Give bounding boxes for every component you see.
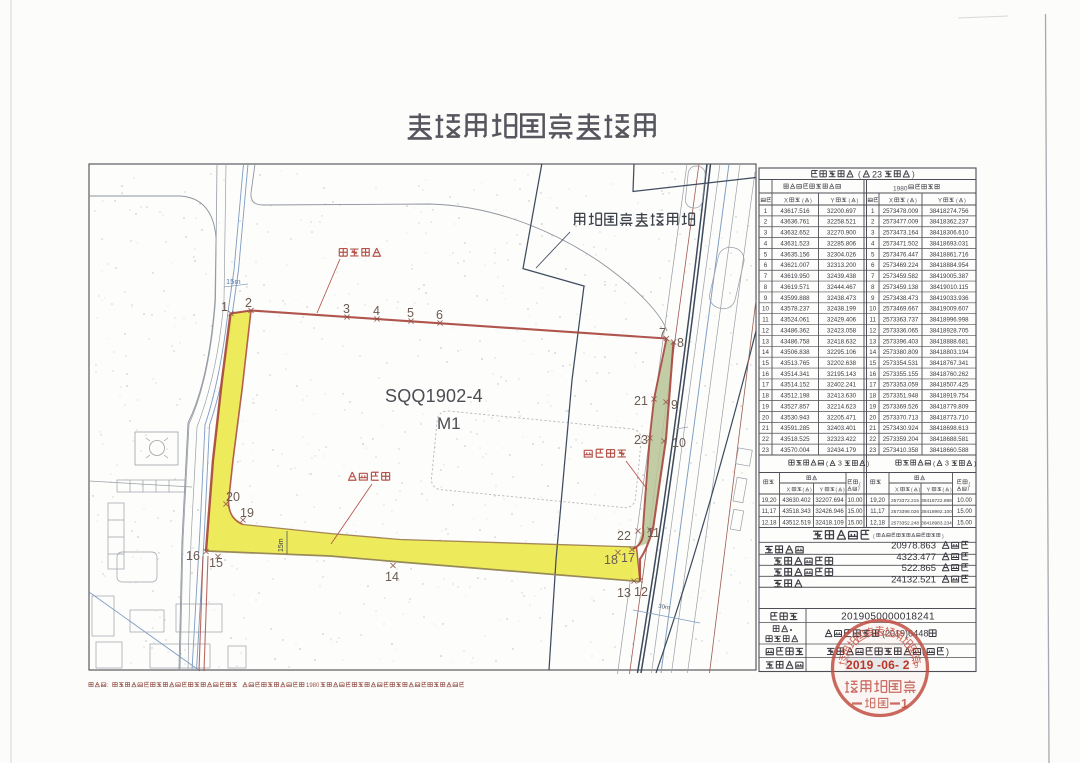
svg-text:2: 2 [764, 219, 768, 226]
svg-text:1: 1 [901, 697, 908, 711]
svg-text:2573359.204: 2573359.204 [883, 436, 919, 443]
svg-text:17: 17 [762, 382, 769, 389]
svg-text:38418688.581: 38418688.581 [930, 436, 970, 443]
svg-text:43636.761: 43636.761 [780, 219, 810, 226]
svg-text:11: 11 [869, 317, 876, 324]
svg-text:2573352.248: 2573352.248 [891, 520, 919, 526]
svg-text:38418760.262: 38418760.262 [930, 371, 970, 378]
svg-text:): ) [915, 199, 917, 205]
svg-text:32444.467: 32444.467 [827, 284, 857, 291]
svg-text:32285.806: 32285.806 [827, 240, 857, 247]
svg-text:38419009.607: 38419009.607 [930, 306, 970, 313]
svg-text:7: 7 [871, 273, 875, 280]
svg-text:43631.523: 43631.523 [780, 240, 810, 247]
svg-text:38418861.716: 38418861.716 [930, 251, 970, 258]
svg-text:32438.199: 32438.199 [827, 306, 857, 313]
svg-text:32258.521: 32258.521 [827, 219, 857, 226]
svg-text:10.00: 10.00 [957, 498, 973, 504]
svg-text:38418779.809: 38418779.809 [930, 403, 970, 410]
svg-text:8: 8 [871, 284, 875, 291]
svg-text:Y: Y [927, 488, 931, 494]
svg-text:13: 13 [762, 338, 769, 345]
svg-text:12: 12 [762, 327, 769, 334]
svg-text:38418888.681: 38418888.681 [930, 338, 970, 345]
svg-text:4: 4 [871, 240, 875, 247]
svg-text:32434.179: 32434.179 [827, 447, 857, 454]
svg-text:(: ( [849, 199, 851, 205]
svg-text:43619.950: 43619.950 [780, 273, 810, 280]
svg-text:32418.632: 32418.632 [827, 338, 857, 345]
svg-text:2573478.009: 2573478.009 [883, 208, 919, 215]
svg-text:38419005.387: 38419005.387 [930, 273, 970, 280]
svg-text:4: 4 [764, 240, 768, 247]
svg-text:43621.007: 43621.007 [780, 262, 810, 269]
svg-text:38418722.898: 38418722.898 [921, 498, 952, 504]
svg-text:2573396.403: 2573396.403 [883, 338, 919, 345]
svg-text:): ) [974, 461, 976, 468]
svg-text:): ) [946, 647, 949, 657]
svg-text:Y: Y [820, 488, 824, 494]
svg-text:38419033.936: 38419033.936 [930, 295, 970, 302]
svg-text:2573398.026: 2573398.026 [891, 509, 919, 515]
svg-text:32270.900: 32270.900 [827, 230, 857, 237]
svg-text:22: 22 [869, 436, 876, 443]
svg-text:43506.838: 43506.838 [780, 349, 810, 356]
svg-text:2573471.502: 2573471.502 [883, 240, 919, 247]
svg-text:4323.477: 4323.477 [896, 552, 936, 563]
svg-text:5: 5 [871, 251, 875, 258]
svg-text:43512.198: 43512.198 [780, 393, 810, 400]
svg-text:8: 8 [764, 284, 768, 291]
svg-text:15.00: 15.00 [957, 520, 973, 526]
svg-text:43530.943: 43530.943 [780, 414, 810, 421]
svg-text:10: 10 [762, 306, 769, 313]
svg-text:19,20: 19,20 [870, 498, 886, 504]
svg-text:20: 20 [869, 414, 876, 421]
svg-text:6: 6 [764, 262, 768, 269]
svg-text:38418773.710: 38418773.710 [930, 414, 970, 421]
svg-text:2573469.667: 2573469.667 [883, 306, 919, 313]
svg-text:18: 18 [762, 393, 769, 400]
svg-text:2573351.948: 2573351.948 [883, 393, 919, 400]
svg-text:10: 10 [869, 306, 876, 313]
svg-text:): ) [912, 170, 915, 179]
svg-text:22: 22 [762, 436, 769, 443]
svg-text:5: 5 [764, 251, 768, 258]
svg-text:15: 15 [762, 360, 769, 367]
svg-text:15.00: 15.00 [847, 509, 863, 515]
svg-text:32195.143: 32195.143 [827, 371, 857, 378]
svg-text:17: 17 [869, 382, 876, 389]
svg-text:43591.285: 43591.285 [780, 425, 810, 432]
svg-text:38418983.234: 38418983.234 [921, 520, 952, 526]
svg-text:43599.888: 43599.888 [780, 295, 810, 302]
svg-text:38418306.610: 38418306.610 [930, 230, 970, 237]
svg-text:32418.109: 32418.109 [815, 520, 844, 526]
svg-text:19,20: 19,20 [761, 498, 777, 504]
svg-text:2573438.473: 2573438.473 [883, 295, 919, 302]
svg-text:15.00: 15.00 [957, 509, 973, 515]
svg-text:32295.106: 32295.106 [827, 349, 857, 356]
svg-text:1980: 1980 [893, 186, 908, 193]
svg-text:2573477.009: 2573477.009 [883, 219, 919, 226]
svg-text:23: 23 [872, 170, 882, 180]
svg-text:15: 15 [869, 360, 876, 367]
svg-text:38418362.237: 38418362.237 [930, 219, 970, 226]
svg-text:32323.422: 32323.422 [827, 436, 857, 443]
svg-text:38418767.341: 38418767.341 [930, 360, 970, 367]
svg-text:23: 23 [869, 447, 876, 454]
svg-text:10.00: 10.00 [847, 498, 863, 504]
svg-text:13: 13 [869, 338, 876, 345]
svg-text:2573355.155: 2573355.155 [883, 371, 919, 378]
svg-text:38418660.588: 38418660.588 [930, 447, 970, 454]
svg-text:32200.697: 32200.697 [827, 208, 857, 215]
svg-text:32426.946: 32426.946 [815, 509, 844, 515]
svg-text:): ) [810, 199, 812, 205]
svg-text:32402.241: 32402.241 [827, 382, 857, 389]
svg-text:38418996.998: 38418996.998 [930, 317, 970, 324]
svg-text:43630.402: 43630.402 [782, 498, 811, 504]
svg-text:20: 20 [762, 414, 769, 421]
svg-text:9: 9 [764, 295, 768, 302]
svg-text:20978.863: 20978.863 [891, 541, 936, 552]
svg-text:38418884.954: 38418884.954 [930, 262, 970, 269]
svg-text:38418992.100: 38418992.100 [921, 509, 952, 515]
svg-text:7: 7 [764, 273, 768, 280]
svg-text:2573410.358: 2573410.358 [883, 447, 919, 454]
svg-text:X: X [787, 488, 791, 494]
svg-text:2573354.531: 2573354.531 [883, 360, 919, 367]
svg-text:3: 3 [871, 230, 875, 237]
svg-text:12: 12 [869, 327, 876, 334]
svg-text:32438.473: 32438.473 [827, 295, 857, 302]
svg-text:43514.341: 43514.341 [780, 371, 810, 378]
svg-text:43527.857: 43527.857 [780, 403, 810, 410]
svg-text:14: 14 [762, 349, 769, 356]
svg-text:): ) [857, 199, 859, 205]
svg-text:11,17: 11,17 [762, 509, 777, 515]
svg-text:2573459.582: 2573459.582 [883, 273, 919, 280]
svg-text:2573353.059: 2573353.059 [883, 382, 919, 389]
svg-text:32202.638: 32202.638 [827, 360, 857, 367]
svg-text:2573473.164: 2573473.164 [883, 230, 919, 237]
svg-text:21: 21 [762, 425, 769, 432]
svg-text:38418928.705: 38418928.705 [930, 327, 970, 334]
svg-text:9: 9 [914, 661, 919, 670]
svg-text:X: X [784, 199, 788, 205]
svg-text:24132.521: 24132.521 [891, 574, 936, 585]
svg-text:11: 11 [762, 317, 769, 324]
svg-text:Y: Y [831, 199, 835, 205]
svg-text:43619.571: 43619.571 [780, 284, 810, 291]
svg-text:38418803.194: 38418803.194 [930, 349, 970, 356]
svg-text:43512.519: 43512.519 [782, 520, 811, 526]
svg-text:38418919.754: 38418919.754 [930, 393, 970, 400]
svg-text:43518.525: 43518.525 [780, 436, 810, 443]
svg-text:3: 3 [838, 461, 842, 468]
svg-text:2573363.737: 2573363.737 [883, 317, 919, 324]
svg-text:38418507.425: 38418507.425 [930, 382, 970, 389]
svg-text:32413.630: 32413.630 [827, 393, 857, 400]
svg-text:(: ( [907, 199, 909, 205]
svg-text:): ) [964, 199, 966, 205]
svg-text:32403.401: 32403.401 [827, 425, 857, 432]
svg-text:43513.765: 43513.765 [780, 360, 810, 367]
svg-text:38418274.756: 38418274.756 [930, 208, 970, 215]
svg-text:522.865: 522.865 [902, 563, 936, 574]
svg-text:2573369.526: 2573369.526 [883, 403, 919, 410]
svg-text:2019 -06- 2: 2019 -06- 2 [846, 658, 910, 672]
svg-text:16: 16 [762, 371, 769, 378]
svg-text:(: ( [858, 170, 861, 179]
svg-text:43486.758: 43486.758 [780, 338, 810, 345]
svg-text:43518.343: 43518.343 [782, 509, 811, 515]
svg-text:12,18: 12,18 [761, 520, 777, 526]
svg-text:2573372.215: 2573372.215 [891, 498, 919, 504]
svg-text:43524.061: 43524.061 [780, 317, 810, 324]
svg-text:(: ( [802, 199, 804, 205]
svg-text:18: 18 [869, 393, 876, 400]
svg-text:43632.652: 43632.652 [780, 230, 810, 237]
svg-text:32304.026: 32304.026 [827, 251, 857, 258]
svg-text:16: 16 [869, 371, 876, 378]
svg-text:Y: Y [938, 199, 942, 205]
svg-text:): ) [867, 461, 869, 468]
svg-text:19: 19 [762, 403, 769, 410]
svg-text:32439.438: 32439.438 [827, 273, 857, 280]
svg-text:43570.004: 43570.004 [780, 447, 810, 454]
svg-text:11,17: 11,17 [870, 509, 885, 515]
svg-text:X: X [895, 488, 899, 494]
svg-text:14: 14 [869, 349, 876, 356]
svg-text:21: 21 [869, 425, 876, 432]
svg-text:43514.152: 43514.152 [780, 382, 810, 389]
svg-text:32205.471: 32205.471 [827, 414, 857, 421]
svg-text:9: 9 [871, 295, 875, 302]
svg-text:32313.200: 32313.200 [827, 262, 857, 269]
svg-text:3: 3 [945, 461, 949, 468]
svg-text:2573469.224: 2573469.224 [883, 262, 919, 269]
svg-text:X: X [889, 199, 893, 205]
svg-text:2573476.447: 2573476.447 [883, 251, 919, 258]
svg-text:15.00: 15.00 [847, 520, 863, 526]
svg-text:43486.362: 43486.362 [780, 327, 810, 334]
svg-text:43635.156: 43635.156 [780, 251, 810, 258]
svg-text:2573430.924: 2573430.924 [883, 425, 919, 432]
svg-text:(: ( [956, 199, 958, 205]
svg-text:2573336.065: 2573336.065 [883, 327, 919, 334]
svg-text:3: 3 [764, 230, 768, 237]
svg-text:6: 6 [871, 262, 875, 269]
svg-text:1980: 1980 [306, 683, 320, 689]
svg-text:32423.058: 32423.058 [827, 327, 857, 334]
svg-text:2: 2 [871, 219, 875, 226]
svg-text:2573380.809: 2573380.809 [883, 349, 919, 356]
svg-text:2573370.713: 2573370.713 [883, 414, 919, 421]
svg-text:43617.516: 43617.516 [780, 208, 810, 215]
svg-text:19: 19 [869, 403, 876, 410]
svg-text:2573459.138: 2573459.138 [883, 284, 919, 291]
svg-text:32429.406: 32429.406 [827, 317, 857, 324]
svg-text:32214.623: 32214.623 [827, 403, 857, 410]
svg-text:38418698.613: 38418698.613 [930, 425, 970, 432]
svg-text:38419010.115: 38419010.115 [930, 284, 969, 291]
svg-text:1: 1 [764, 208, 768, 215]
svg-text:1: 1 [871, 208, 875, 215]
svg-text:23: 23 [762, 447, 769, 454]
svg-text:38418693.031: 38418693.031 [930, 240, 970, 247]
svg-text:43578.237: 43578.237 [780, 306, 810, 313]
svg-text:12,18: 12,18 [870, 520, 886, 526]
svg-text::: : [107, 683, 109, 689]
svg-text:32207.694: 32207.694 [815, 498, 844, 504]
